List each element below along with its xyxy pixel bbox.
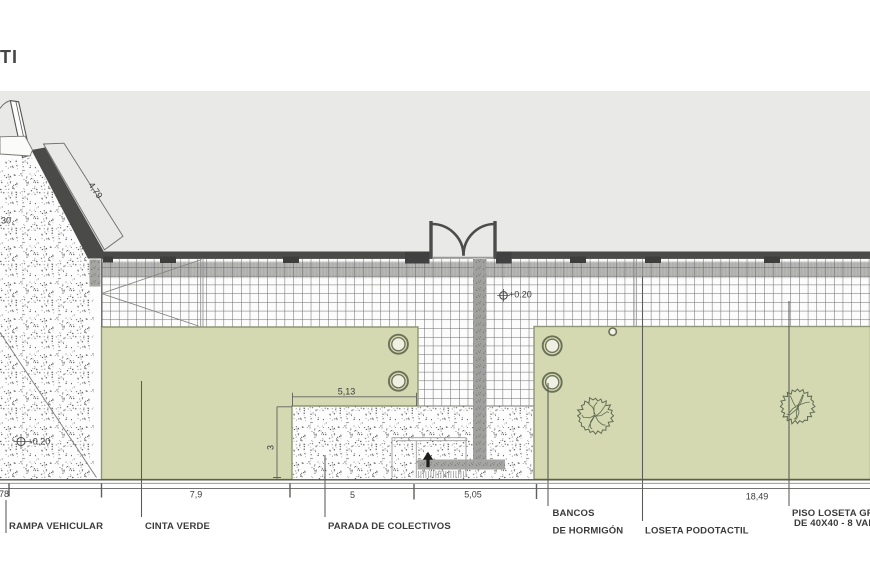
svg-text:5,13: 5,13: [338, 387, 356, 397]
svg-text:LOSETA PODOTACTIL: LOSETA PODOTACTIL: [645, 526, 749, 537]
svg-text:CINTA VERDE: CINTA VERDE: [145, 521, 210, 532]
svg-text:RAMPA VEHICULAR: RAMPA VEHICULAR: [9, 521, 103, 532]
svg-text:+0.20: +0.20: [28, 437, 51, 447]
svg-text:18,49: 18,49: [746, 492, 769, 502]
svg-text:+0.20: +0.20: [509, 290, 532, 300]
svg-text:7,9: 7,9: [190, 490, 203, 500]
svg-text:5,05: 5,05: [464, 490, 482, 500]
svg-text:DE 40X40 - 8 VAINILLAS: DE 40X40 - 8 VAINILLAS: [794, 518, 870, 529]
svg-text:5: 5: [350, 490, 355, 500]
svg-text:78: 78: [0, 489, 9, 499]
svg-text:.30: .30: [0, 216, 11, 226]
svg-text:TI: TI: [0, 47, 18, 67]
svg-text:BANCOS: BANCOS: [553, 508, 595, 519]
svg-text:PARADA DE COLECTIVOS: PARADA DE COLECTIVOS: [328, 521, 451, 532]
svg-text:3: 3: [266, 445, 276, 450]
svg-text:DE HORMIGÓN: DE HORMIGÓN: [553, 525, 624, 537]
